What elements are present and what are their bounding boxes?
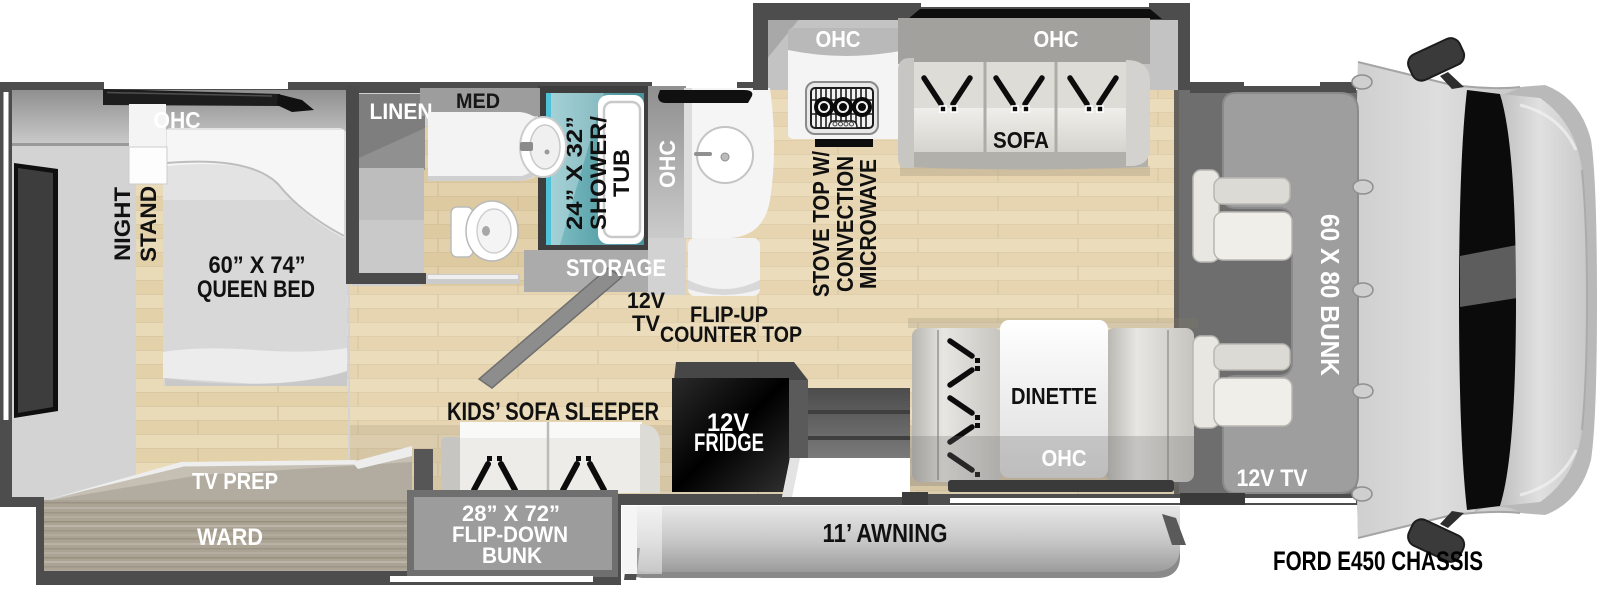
svg-text:QUEEN BED: QUEEN BED <box>197 276 315 303</box>
svg-text:60” X 74”: 60” X 74” <box>209 252 306 279</box>
svg-text:STAND: STAND <box>136 186 161 262</box>
svg-text:SOFA: SOFA <box>993 127 1049 153</box>
svg-text:DINETTE: DINETTE <box>1011 383 1097 409</box>
svg-text:OHC: OHC <box>1034 26 1079 52</box>
svg-text:STORAGE: STORAGE <box>566 255 666 282</box>
svg-text:LINEN: LINEN <box>370 99 433 124</box>
svg-text:MED: MED <box>456 90 500 113</box>
svg-text:WARD: WARD <box>197 524 263 551</box>
svg-text:STOVE TOP W/: STOVE TOP W/ <box>808 150 834 297</box>
svg-text:OHC: OHC <box>655 140 680 188</box>
svg-text:60 X 80 BUNK: 60 X 80 BUNK <box>1315 214 1345 376</box>
svg-text:OHC: OHC <box>154 107 201 133</box>
svg-text:OHC: OHC <box>816 26 861 52</box>
svg-text:TUB: TUB <box>609 149 634 197</box>
svg-text:TV PREP: TV PREP <box>192 468 278 494</box>
svg-text:12V: 12V <box>627 288 665 313</box>
svg-text:FRIDGE: FRIDGE <box>694 429 764 457</box>
svg-text:NIGHT: NIGHT <box>110 186 135 261</box>
svg-text:SHOWER/: SHOWER/ <box>586 116 611 230</box>
svg-text:COUNTER TOP: COUNTER TOP <box>660 322 802 347</box>
svg-text:OHC: OHC <box>1042 445 1087 471</box>
svg-text:11’ AWNING: 11’ AWNING <box>823 518 948 548</box>
svg-text:FORD E450 CHASSIS: FORD E450 CHASSIS <box>1273 546 1483 576</box>
svg-text:BUNK: BUNK <box>482 543 542 568</box>
svg-text:12V TV: 12V TV <box>1237 465 1308 492</box>
svg-text:MICROWAVE: MICROWAVE <box>855 159 881 289</box>
svg-text:24” X 32”: 24” X 32” <box>562 116 587 230</box>
svg-text:KIDS’ SOFA SLEEPER: KIDS’ SOFA SLEEPER <box>447 398 659 426</box>
svg-text:TV: TV <box>632 311 660 336</box>
